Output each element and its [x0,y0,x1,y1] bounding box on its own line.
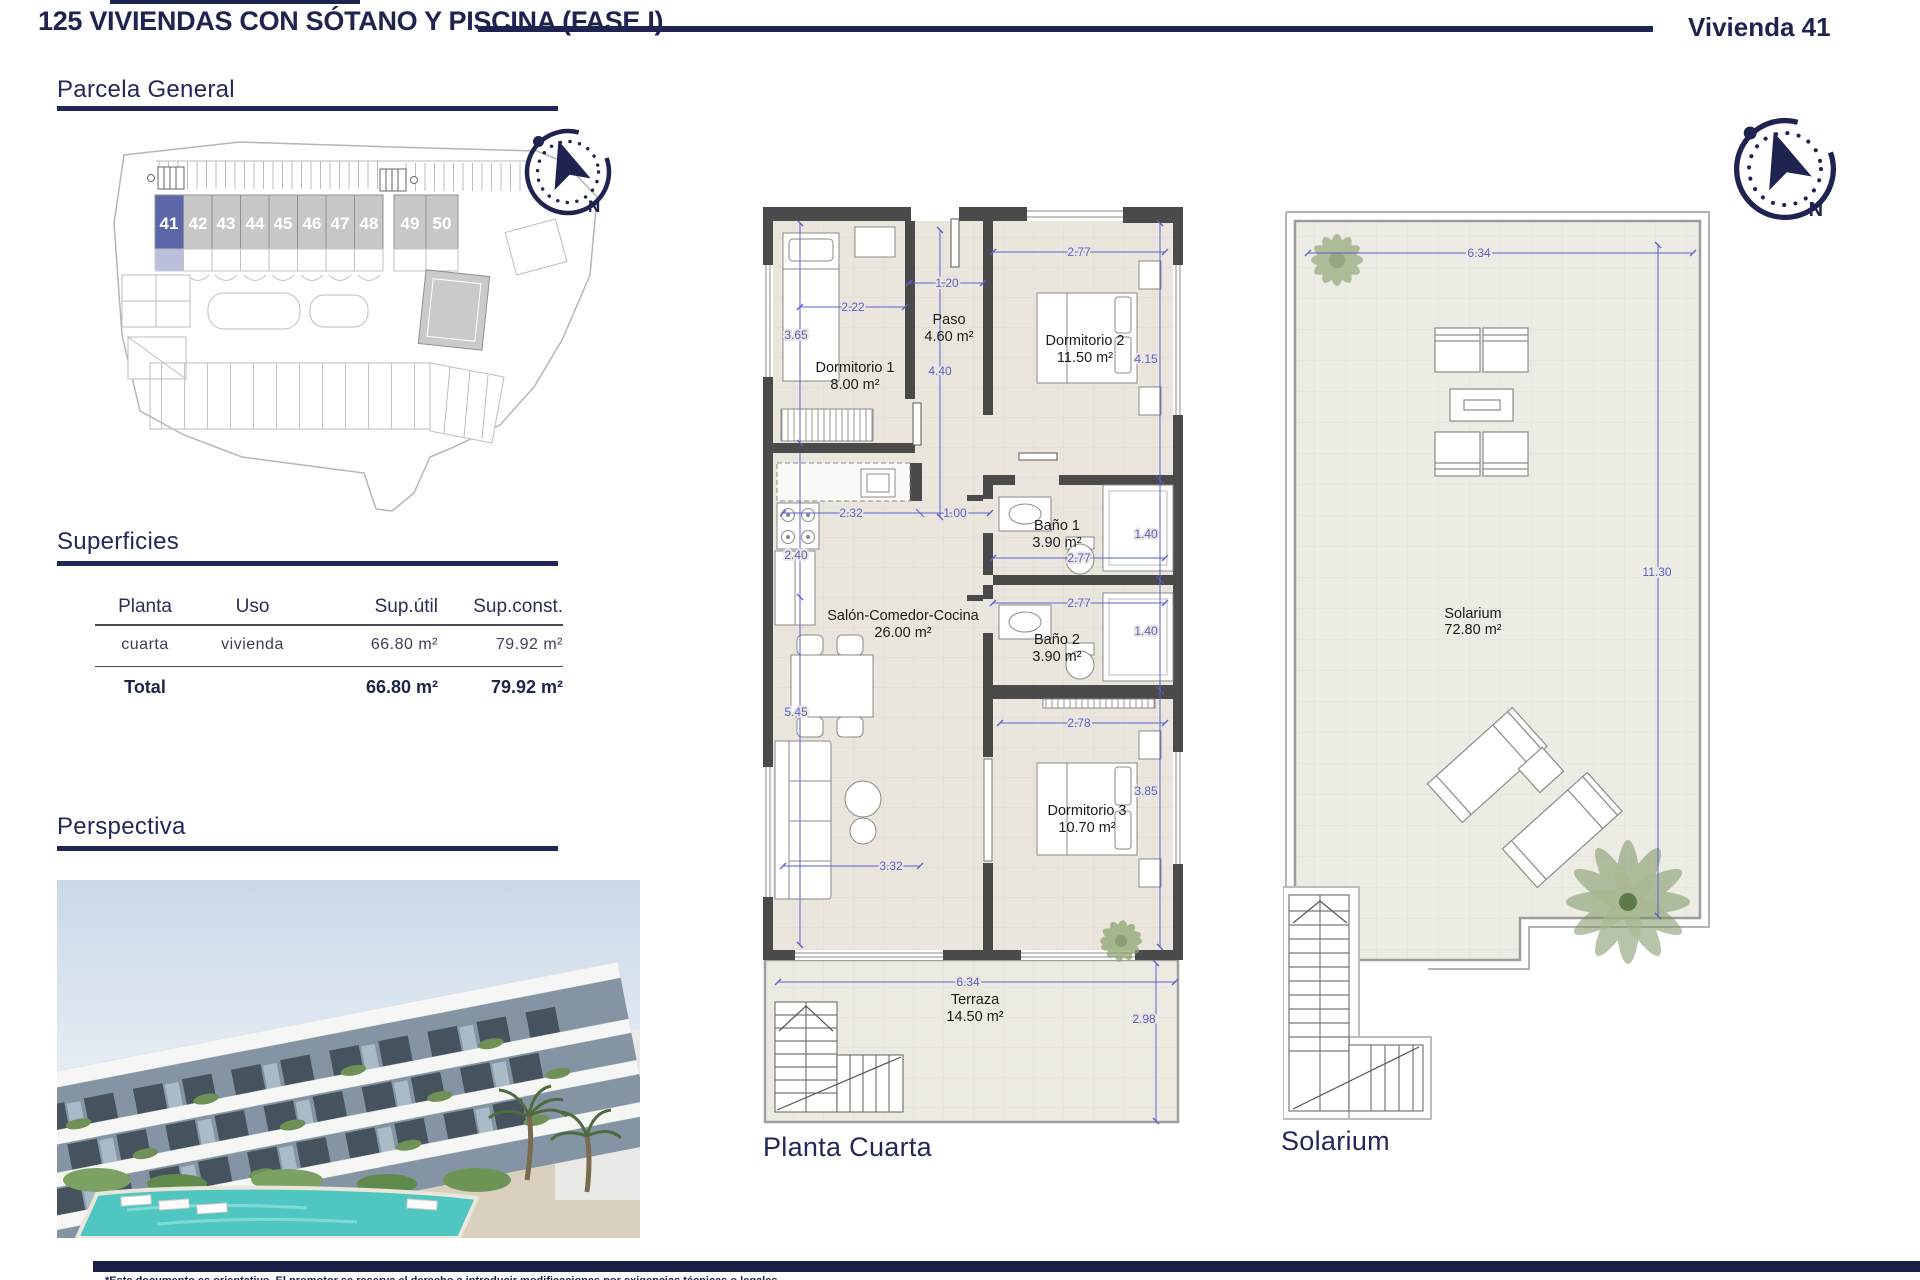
caption-planta-cuarta: Planta Cuarta [763,1132,932,1163]
svg-text:49: 49 [401,214,420,233]
svg-text:41: 41 [160,214,179,233]
svg-text:4.40: 4.40 [928,364,952,378]
svg-text:2.77: 2.77 [1067,245,1091,259]
table-header-row: Planta Uso Sup.útil Sup.const. [95,596,563,624]
chair [837,717,863,737]
svg-text:2.77: 2.77 [1067,596,1091,610]
svg-text:11.50 m²: 11.50 m² [1057,350,1113,366]
section-parcela-title: Parcela General [57,76,235,104]
pool-building [418,270,489,350]
svg-text:45: 45 [274,214,293,233]
unit-numbers: 41 42 43 44 45 46 47 48 49 50 [160,214,452,233]
section-perspectiva-title: Perspectiva [57,813,186,841]
table-total-row: Total 66.80 m² 79.92 m² [95,667,563,698]
footer-bar [93,1261,1920,1272]
svg-text:1.40: 1.40 [1134,624,1158,638]
svg-text:14.50 m²: 14.50 m² [946,1009,1003,1025]
room-dormitorio1: Dormitorio 1 [816,360,895,376]
nightstand [855,227,895,257]
svg-text:11.30: 11.30 [1642,565,1671,579]
svg-text:1.20: 1.20 [935,276,959,290]
cell-sup-util: 66.80 m² [310,636,438,654]
page-title: 125 VIVIENDAS CON SÓTANO Y PISCINA (FASE… [38,6,663,37]
svg-text:4.60 m²: 4.60 m² [924,329,973,345]
svg-text:44: 44 [246,214,265,233]
radiator [781,409,873,441]
section-superficies-rule [57,561,558,566]
radiator [1043,699,1155,708]
compass-arrow [540,135,590,190]
nightstand [1139,731,1161,759]
svg-text:2.77: 2.77 [1067,551,1091,565]
cell-uso: vivienda [195,636,310,654]
north-label: N [588,197,600,216]
total-label: Total [95,677,195,698]
svg-text:10.70 m²: 10.70 m² [1058,820,1115,836]
svg-text:4.15: 4.15 [1134,352,1158,366]
room-dormitorio3: Dormitorio 3 [1048,803,1127,819]
svg-text:26.00 m²: 26.00 m² [874,625,931,641]
cell-planta: cuarta [95,636,195,654]
title-rule [478,26,1653,32]
coffee-table [845,781,881,817]
chair [797,635,823,655]
compass-arrow [1752,125,1811,190]
svg-text:47: 47 [331,214,350,233]
caption-solarium: Solarium [1281,1126,1390,1157]
svg-text:2.32: 2.32 [839,506,863,520]
svg-text:3.90 m²: 3.90 m² [1032,535,1081,551]
unit-label: Vivienda 41 [1688,12,1831,43]
svg-text:6.34: 6.34 [1467,246,1491,260]
total-sup-util: 66.80 m² [310,677,438,698]
svg-text:6.34: 6.34 [956,975,980,989]
svg-text:2.98: 2.98 [1132,1012,1156,1026]
svg-text:48: 48 [360,214,379,233]
total-sup-const: 79.92 m² [438,677,563,698]
pool [77,1188,477,1238]
footer-disclaimer: *Este documento es orientativo. El promo… [105,1274,781,1280]
svg-text:8.00 m²: 8.00 m² [830,377,879,393]
svg-text:3.32: 3.32 [879,859,903,873]
col-uso: Uso [195,596,310,618]
svg-text:1.40: 1.40 [1134,527,1158,541]
page-top-mark [110,0,360,4]
room-solarium: Solarium [1444,606,1501,622]
svg-text:42: 42 [189,214,208,233]
svg-text:5.45: 5.45 [784,705,808,719]
section-perspectiva-rule [57,846,558,851]
nightstand [1139,261,1161,289]
col-planta: Planta [95,596,195,618]
col-sup-const: Sup.const. [438,596,563,618]
parking-spaces [398,163,528,191]
superficies-table: Planta Uso Sup.útil Sup.const. cuarta vi… [95,596,563,698]
page: 125 VIVIENDAS CON SÓTANO Y PISCINA (FASE… [0,0,1920,1280]
perspective-render [57,880,640,1238]
chair [797,717,823,737]
svg-text:2.78: 2.78 [1067,716,1091,730]
solarium-plan: 6.34 11.30 Solarium 72.80 m² [1283,205,1720,1123]
table-row: cuarta vivienda 66.80 m² 79.92 m² [95,626,563,666]
room-bano2: Baño 2 [1034,632,1080,648]
nightstand [1139,859,1161,887]
section-superficies-title: Superficies [57,528,179,556]
side-table [850,818,876,844]
svg-text:1.00: 1.00 [943,506,967,520]
section-parcela-rule [57,106,558,111]
room-dormitorio2: Dormitorio 2 [1046,333,1125,349]
cell-sup-const: 79.92 m² [438,636,563,654]
compass-icon: N [518,122,618,222]
room-bano1: Baño 1 [1034,518,1080,534]
svg-text:43: 43 [217,214,236,233]
room-paso: Paso [932,312,965,328]
chair [837,635,863,655]
north-label: N [1809,199,1823,221]
svg-text:3.85: 3.85 [1134,784,1158,798]
svg-text:50: 50 [433,214,452,233]
svg-text:2.22: 2.22 [841,300,865,314]
nightstand [1139,387,1161,415]
svg-text:72.80 m²: 72.80 m² [1444,622,1501,638]
svg-text:3.90 m²: 3.90 m² [1032,649,1081,665]
col-sup-util: Sup.útil [310,596,438,618]
room-salon: Salón-Comedor-Cocina [827,608,979,624]
svg-text:3.65: 3.65 [784,328,808,342]
room-terraza: Terraza [951,992,1000,1008]
svg-text:46: 46 [303,214,322,233]
floor-plan-planta-cuarta: 3.65 2.40 5.45 2.22 1.20 4.40 2.77 4.15 … [763,207,1183,1127]
parking-spaces [158,161,380,189]
compass-icon: N [1726,110,1844,228]
svg-text:2.40: 2.40 [784,548,808,562]
